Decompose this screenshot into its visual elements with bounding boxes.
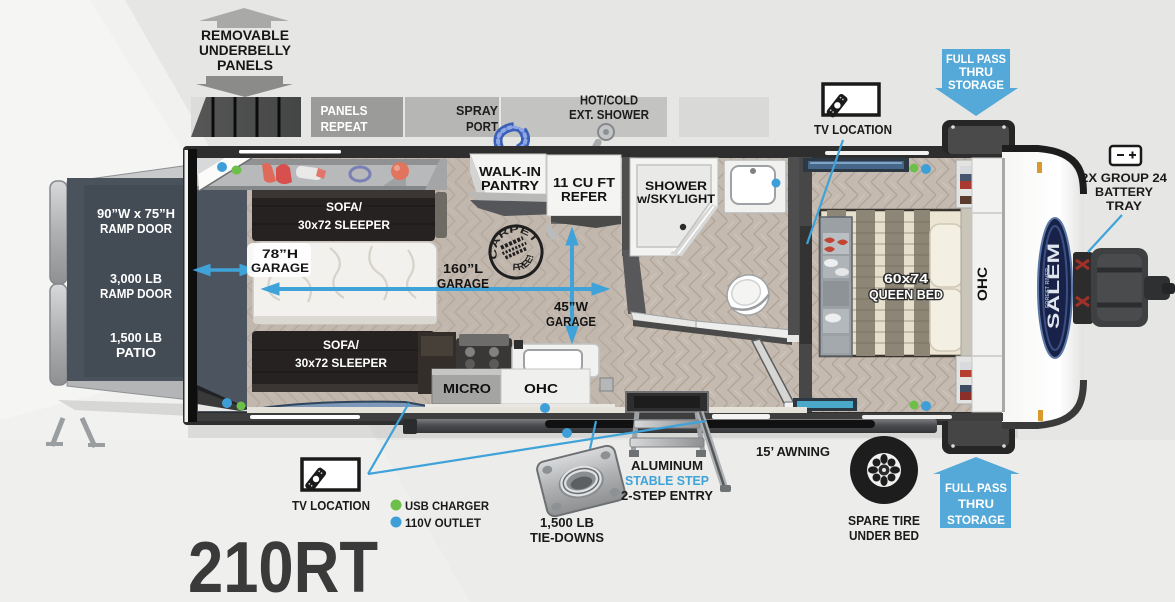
svg-text:78”H: 78”H [262, 247, 298, 261]
svg-text:STORAGE: STORAGE [948, 80, 1004, 92]
svg-text:PANELS: PANELS [321, 103, 368, 118]
svg-text:FULL PASS: FULL PASS [945, 481, 1007, 495]
svg-text:PANELS: PANELS [217, 58, 273, 73]
svg-text:30x72 SLEEPER: 30x72 SLEEPER [298, 220, 391, 232]
svg-text:PANTRY: PANTRY [481, 179, 540, 193]
svg-text:USB CHARGER: USB CHARGER [405, 499, 489, 513]
svg-text:OHC: OHC [524, 381, 559, 396]
svg-text:15’ AWNING: 15’ AWNING [756, 445, 830, 459]
svg-text:90”W x 75”H: 90”W x 75”H [97, 207, 175, 221]
svg-text:QUEEN BED: QUEEN BED [869, 288, 943, 302]
svg-text:30x72 SLEEPER: 30x72 SLEEPER [295, 358, 388, 370]
svg-text:GARAGE: GARAGE [251, 261, 309, 275]
svg-text:SPRAY: SPRAY [456, 103, 498, 118]
svg-text:REMOVABLE: REMOVABLE [201, 28, 289, 43]
svg-text:GARAGE: GARAGE [546, 314, 596, 329]
svg-text:REPEAT: REPEAT [321, 119, 368, 134]
svg-text:2-STEP ENTRY: 2-STEP ENTRY [621, 488, 713, 503]
svg-text:11 CU FT: 11 CU FT [553, 176, 615, 190]
svg-text:UNDER BED: UNDER BED [849, 528, 919, 543]
svg-text:TIE-DOWNS: TIE-DOWNS [530, 530, 604, 545]
svg-text:ALUMINUM: ALUMINUM [631, 458, 703, 473]
svg-text:THRU: THRU [959, 67, 993, 79]
svg-text:SOFA/: SOFA/ [323, 340, 360, 352]
svg-text:3,000 LB: 3,000 LB [110, 272, 162, 286]
svg-text:PORT: PORT [466, 119, 498, 134]
svg-text:REFER: REFER [561, 190, 607, 204]
svg-text:STORAGE: STORAGE [947, 513, 1005, 527]
svg-text:TV LOCATION: TV LOCATION [814, 123, 892, 137]
svg-text:MICRO: MICRO [443, 381, 491, 396]
svg-text:210RT: 210RT [188, 528, 378, 602]
svg-text:RAMP DOOR: RAMP DOOR [100, 287, 172, 301]
svg-text:RAMP DOOR: RAMP DOOR [100, 222, 172, 236]
svg-text:BATTERY: BATTERY [1095, 185, 1153, 199]
svg-text:WALK-IN: WALK-IN [479, 165, 541, 179]
svg-text:TRAY: TRAY [1106, 199, 1142, 213]
svg-text:OHC: OHC [975, 267, 990, 301]
svg-text:SPARE TIRE: SPARE TIRE [848, 513, 920, 528]
svg-text:w/SKYLIGHT: w/SKYLIGHT [636, 194, 715, 206]
svg-text:FULL PASS: FULL PASS [946, 54, 1006, 66]
svg-text:GARAGE: GARAGE [437, 276, 489, 291]
svg-text:TV LOCATION: TV LOCATION [292, 499, 370, 513]
svg-text:60x74: 60x74 [884, 272, 928, 286]
svg-text:HOT/COLD: HOT/COLD [580, 94, 638, 108]
svg-text:THRU: THRU [958, 497, 994, 511]
svg-text:STABLE STEP: STABLE STEP [625, 473, 709, 488]
svg-text:UNDERBELLY: UNDERBELLY [199, 43, 291, 58]
svg-text:PATIO: PATIO [116, 346, 156, 360]
svg-text:EXT. SHOWER: EXT. SHOWER [569, 108, 649, 122]
svg-text:1,500 LB: 1,500 LB [110, 331, 162, 345]
svg-text:1,500 LB: 1,500 LB [540, 515, 594, 530]
svg-text:160”L: 160”L [443, 261, 483, 276]
svg-text:SOFA/: SOFA/ [326, 202, 363, 214]
svg-text:SHOWER: SHOWER [645, 181, 708, 193]
svg-text:FOREST RIVER: FOREST RIVER [1045, 268, 1051, 308]
svg-text:45”W: 45”W [554, 299, 589, 314]
svg-text:2X GROUP 24: 2X GROUP 24 [1081, 171, 1167, 185]
svg-text:110V OUTLET: 110V OUTLET [405, 516, 482, 530]
